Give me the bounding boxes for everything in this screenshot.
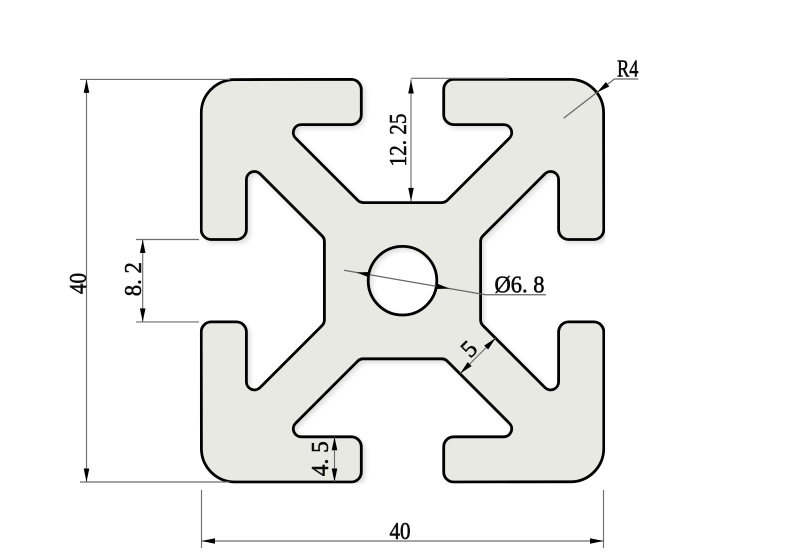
svg-text:40: 40 — [66, 273, 92, 294]
svg-text:Ø6. 8: Ø6. 8 — [495, 273, 545, 299]
svg-text:12. 25: 12. 25 — [386, 114, 412, 167]
svg-text:R4: R4 — [617, 56, 639, 82]
svg-text:8. 2: 8. 2 — [121, 262, 147, 296]
svg-text:4. 5: 4. 5 — [308, 441, 334, 476]
svg-text:40: 40 — [390, 519, 411, 545]
